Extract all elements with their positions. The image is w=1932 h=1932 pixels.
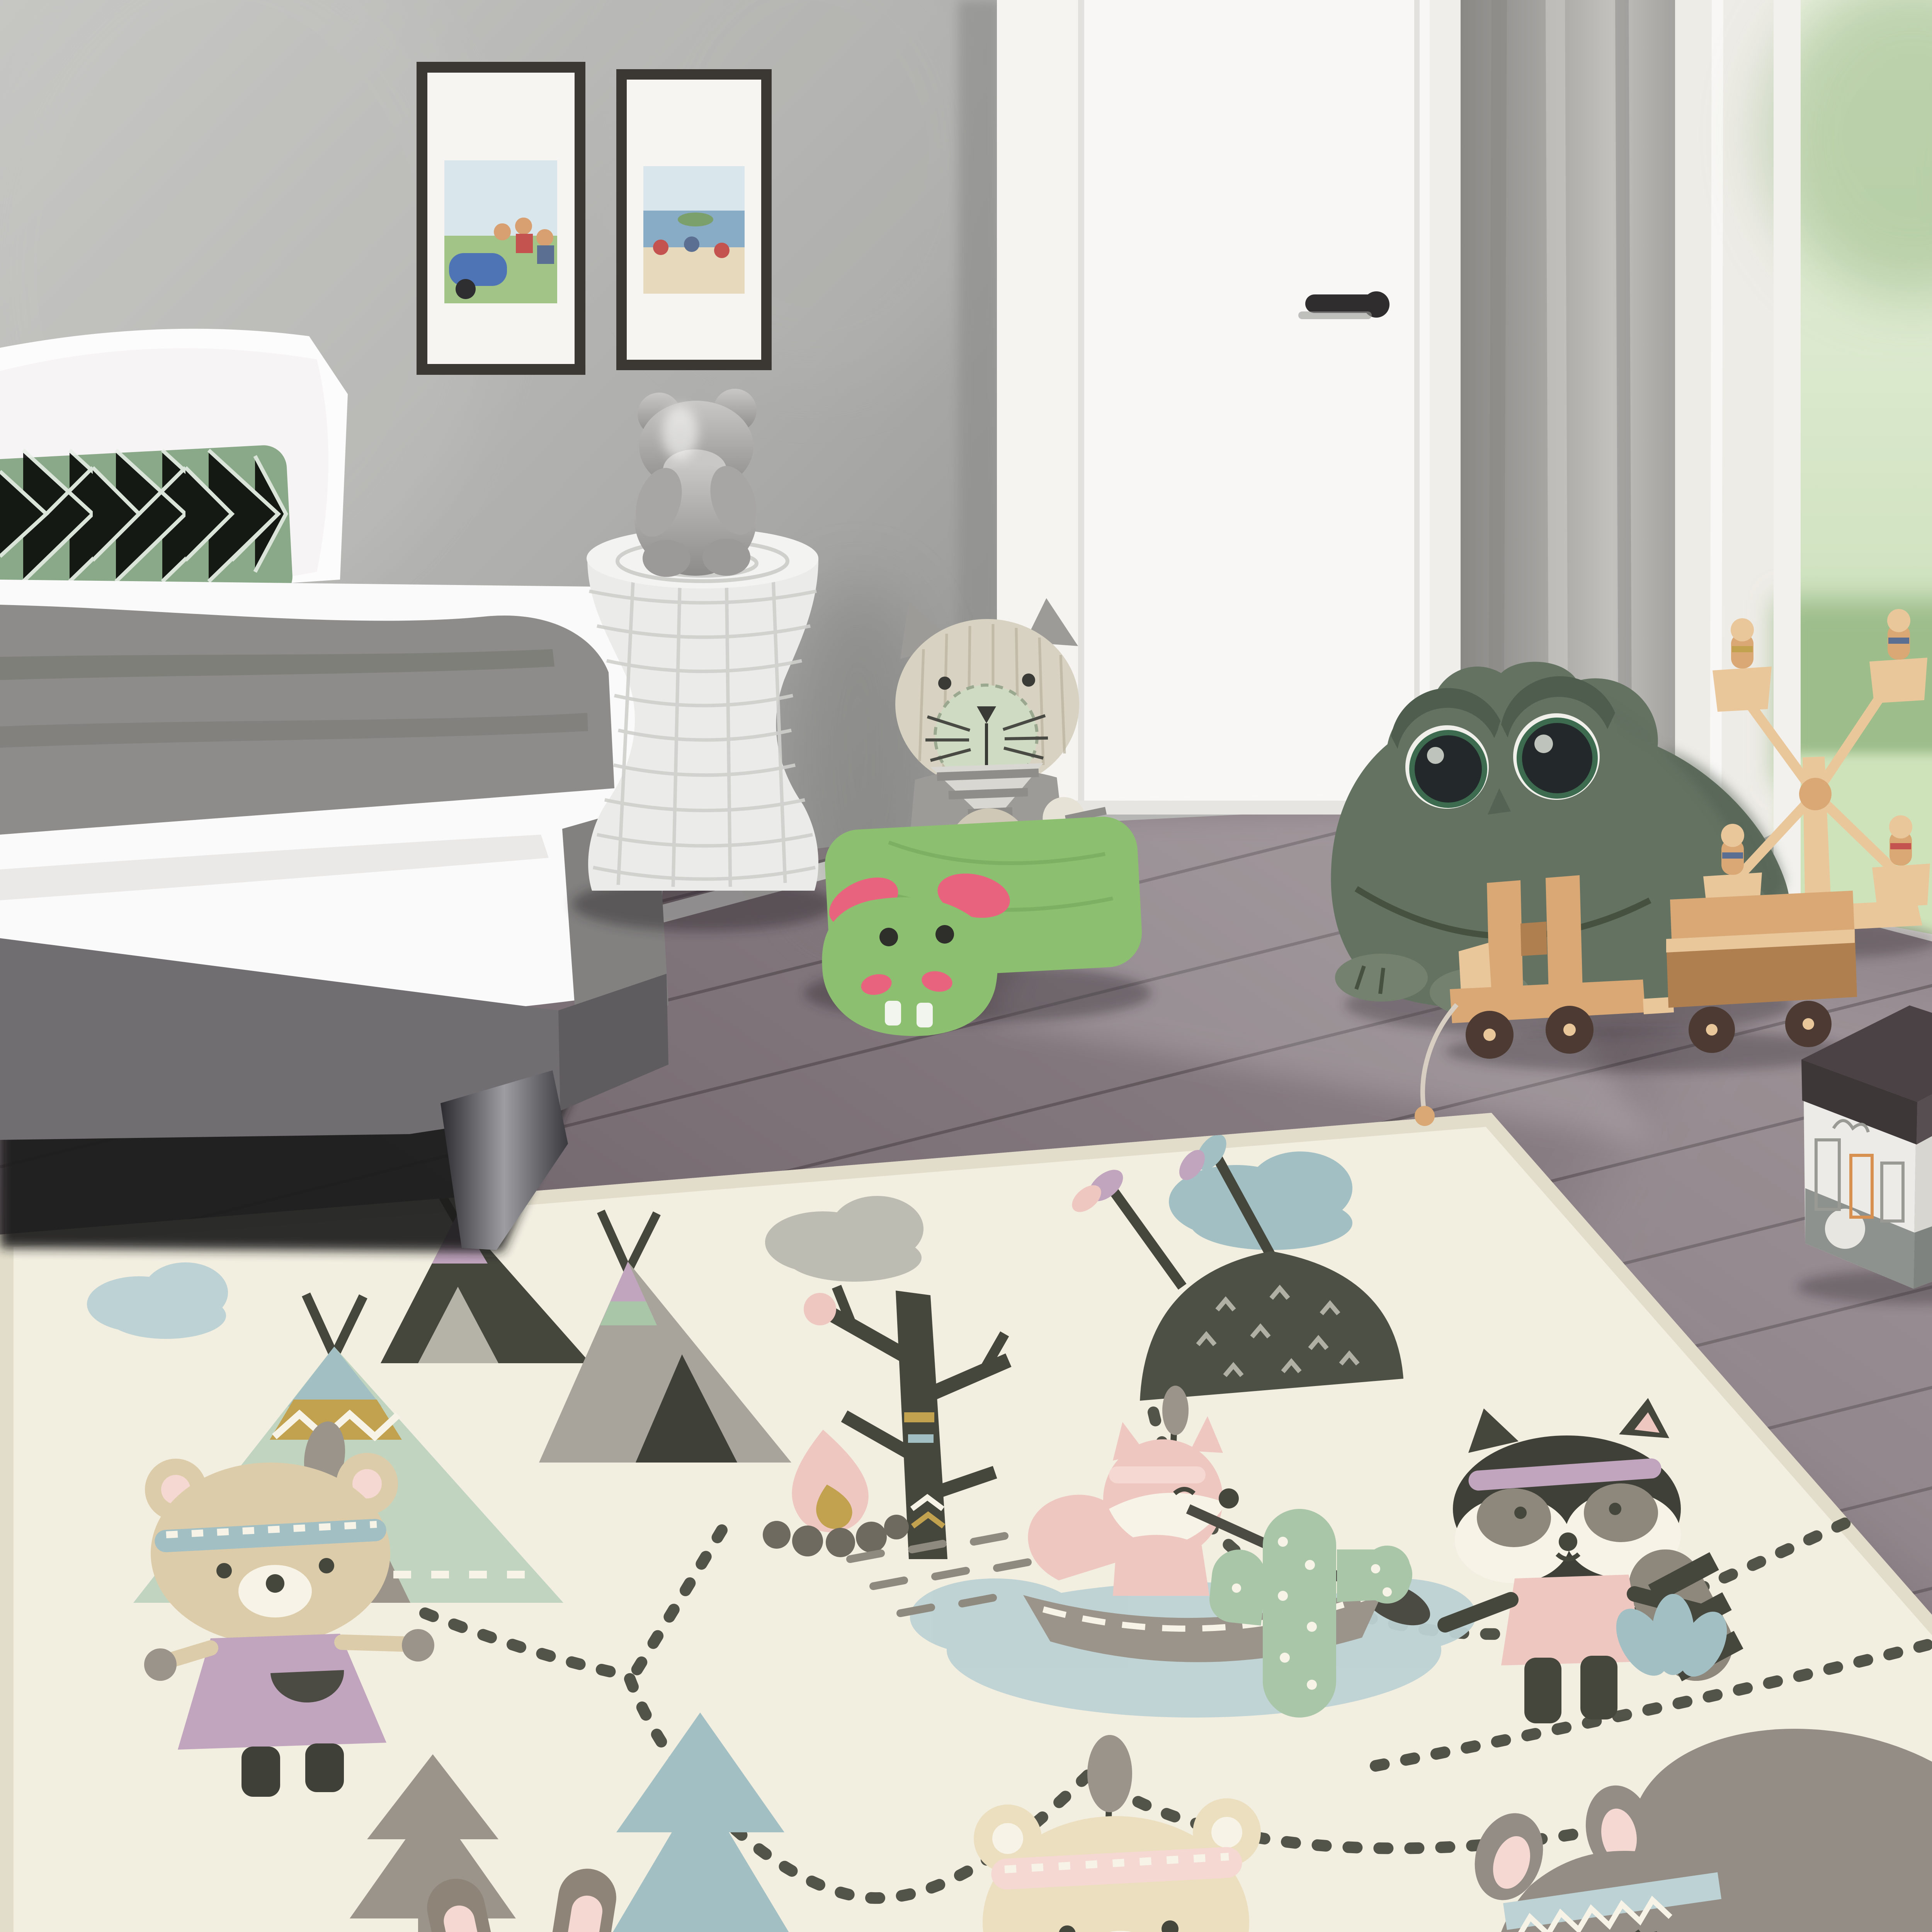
bear-fig-leg-right [702, 539, 750, 576]
totem-flower [804, 1293, 836, 1325]
gummy-bear-figure [628, 389, 764, 577]
fox-headband [1109, 1466, 1206, 1483]
hippo-tooth-right [917, 1003, 933, 1027]
string-knob [1415, 1106, 1435, 1126]
bear-fig-highlight [662, 406, 698, 460]
artwork-picnic [444, 160, 557, 303]
hippo-head [822, 897, 997, 1036]
raccoon-nose [1559, 1532, 1577, 1551]
engine-plank-left [1487, 880, 1523, 998]
bedroom-scene [0, 0, 1932, 1932]
raccoon-eyepatch-right [1584, 1483, 1658, 1542]
door [1078, 0, 1461, 811]
sheer-fold [1710, 0, 1723, 846]
picture-frame-left [417, 62, 585, 375]
hippo-tooth-left [885, 1001, 901, 1026]
door-slab [1078, 0, 1432, 808]
handle-lever [1305, 294, 1379, 313]
engine-notch [1520, 922, 1547, 956]
cat-eye-right [1022, 673, 1035, 687]
hippo-eye-right [935, 925, 954, 944]
ferris-hub [1799, 778, 1832, 810]
door-handle [1298, 291, 1389, 319]
engine-plank-right [1546, 875, 1583, 995]
door-left-edge [1078, 0, 1084, 808]
fox-body [1113, 1535, 1209, 1596]
hippo-eye-left [879, 928, 898, 946]
cat-eye-left [938, 677, 951, 690]
handle-shadow [1298, 311, 1372, 319]
picture-frame-right [616, 69, 772, 370]
fox-nose [1219, 1488, 1239, 1509]
raccoon-eyepatch-left [1477, 1488, 1551, 1547]
door-right-edge [1414, 0, 1420, 808]
artwork-beach [643, 166, 745, 294]
bear-fig-leg-left [643, 540, 690, 577]
